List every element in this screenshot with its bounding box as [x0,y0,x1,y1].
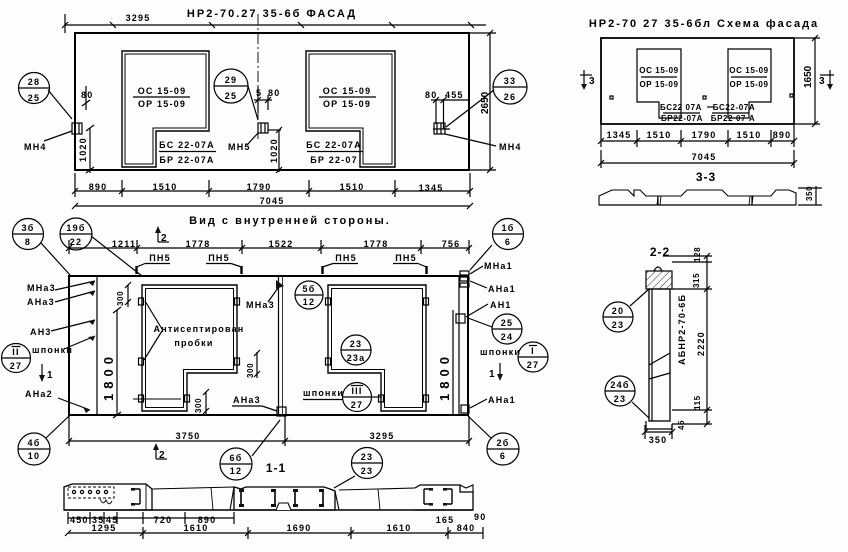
svg-text:АН1: АН1 [490,300,512,310]
svg-text:шпонки: шпонки [303,388,344,398]
svg-text:720: 720 [154,515,173,525]
svg-text:6б: 6б [230,453,243,463]
svg-text:5б: 5б [303,284,316,294]
svg-text:БС22 07А: БС22 07А [660,103,702,112]
svg-text:АНа3: АНа3 [233,395,261,405]
svg-text:1510: 1510 [647,130,672,140]
svg-text:23а: 23а [347,353,366,363]
svg-text:1: 1 [489,369,495,380]
svg-text:ПН5: ПН5 [208,253,230,263]
svg-text:27: 27 [10,361,22,371]
svg-text:890: 890 [773,130,792,140]
svg-text:1020: 1020 [78,137,88,162]
svg-text:ОР 15-09: ОР 15-09 [639,80,678,89]
svg-text:1790: 1790 [692,130,717,140]
svg-text:3-3: 3-3 [696,170,716,184]
svg-text:I: I [531,346,535,356]
svg-text:БР22-07А: БР22-07А [661,114,703,123]
svg-text:7045: 7045 [260,196,285,206]
svg-text:3750: 3750 [176,431,201,441]
svg-text:24б: 24б [610,380,629,390]
svg-text:БС 22-07А: БС 22-07А [306,140,362,150]
svg-text:шпонки: шпонки [480,347,521,357]
svg-text:10: 10 [28,451,40,461]
svg-text:МНа1: МНа1 [484,261,513,271]
svg-text:1800: 1800 [437,352,452,401]
svg-text:23: 23 [361,466,373,476]
svg-text:1800: 1800 [101,352,116,401]
svg-text:23: 23 [614,394,626,404]
svg-text:19б: 19б [66,223,85,233]
svg-text:300: 300 [194,398,203,413]
svg-text:1510: 1510 [737,130,762,140]
svg-text:ОС 15-09: ОС 15-09 [729,66,768,75]
svg-text:БР 22-07: БР 22-07 [310,155,358,165]
svg-text:АНа1: АНа1 [488,284,516,294]
svg-text:3: 3 [819,76,825,87]
svg-text:128: 128 [693,247,702,262]
svg-text:1295: 1295 [92,523,117,533]
svg-text:7045: 7045 [692,152,717,162]
svg-text:ОР 15-09: ОР 15-09 [323,99,371,109]
svg-text:300: 300 [116,291,125,306]
svg-text:1610: 1610 [387,523,412,533]
svg-text:ПН5: ПН5 [149,253,171,263]
svg-text:1-1: 1-1 [266,461,286,475]
svg-text:24: 24 [501,332,513,342]
svg-text:455: 455 [445,90,464,100]
svg-text:ПН5: ПН5 [395,253,417,263]
svg-text:1522: 1522 [269,239,294,249]
svg-text:АНа1: АНа1 [488,395,516,405]
svg-text:4б: 4б [28,438,41,448]
svg-text:1б: 1б [502,223,515,233]
svg-text:шпонки: шпонки [32,345,73,355]
svg-text:80: 80 [81,90,93,100]
svg-text:ПН5: ПН5 [335,253,357,263]
svg-text:1510: 1510 [153,182,178,192]
svg-text:25: 25 [225,91,237,101]
svg-text:2650: 2650 [480,91,491,114]
svg-text:1610: 1610 [184,523,209,533]
svg-text:1211: 1211 [112,239,136,249]
svg-text:890: 890 [89,182,108,192]
svg-text:БР22 07 А: БР22 07 А [711,114,756,123]
svg-text:МН4: МН4 [499,142,522,152]
svg-text:300: 300 [246,363,255,378]
svg-text:1510: 1510 [340,182,365,192]
svg-text:23: 23 [361,452,373,462]
svg-text:26: 26 [504,92,516,102]
svg-text:1790: 1790 [247,182,272,192]
svg-text:2б: 2б [497,438,510,448]
svg-text:1778: 1778 [186,239,211,249]
svg-text:ОР 15-09: ОР 15-09 [729,80,768,89]
svg-text:АБНР2-70-6Б: АБНР2-70-6Б [677,294,687,365]
svg-text:2220: 2220 [696,331,706,356]
svg-text:пробки: пробки [174,338,213,348]
svg-text:27: 27 [527,360,539,370]
svg-text:1345: 1345 [419,183,444,193]
svg-text:МН5: МН5 [228,142,251,152]
svg-text:3295: 3295 [370,431,395,441]
svg-text:29: 29 [225,75,237,85]
svg-text:756: 756 [442,239,461,249]
svg-text:165: 165 [436,515,455,525]
svg-text:АН3: АН3 [30,327,52,337]
svg-text:12: 12 [230,466,242,476]
svg-text:БС 22-07А: БС 22-07А [159,140,215,150]
svg-text:115: 115 [693,395,702,410]
svg-text:МНа3: МНа3 [27,283,56,293]
svg-text:III: III [351,386,362,396]
svg-text:1: 1 [47,370,53,381]
svg-text:22: 22 [70,237,82,247]
svg-text:28: 28 [28,77,40,87]
svg-text:8: 8 [25,237,31,247]
svg-text:25: 25 [28,93,40,103]
svg-text:80: 80 [268,88,280,98]
svg-text:БС22-07А: БС22-07А [713,103,755,112]
svg-text:45: 45 [677,420,686,430]
svg-text:ОР 15-09: ОР 15-09 [138,99,186,109]
svg-text:АНа3: АНа3 [27,297,55,307]
svg-text:1650: 1650 [803,65,814,88]
svg-text:1020: 1020 [269,138,279,163]
svg-text:450: 450 [70,515,89,525]
svg-text:Вид с внутренней стороны.: Вид с внутренней стороны. [189,215,391,227]
svg-text:27: 27 [351,400,363,410]
svg-text:1345: 1345 [607,130,632,140]
svg-text:3б: 3б [22,223,35,233]
svg-text:350: 350 [805,186,814,201]
svg-text:3295: 3295 [126,13,151,23]
svg-text:ОС 15-09: ОС 15-09 [323,86,372,96]
svg-text:6: 6 [505,237,511,247]
svg-text:Антисептирован: Антисептирован [154,324,245,334]
svg-text:3: 3 [589,76,595,87]
svg-text:БР 22-07А: БР 22-07А [159,155,214,165]
svg-text:23: 23 [612,320,624,330]
svg-text:МН4: МН4 [24,142,47,152]
svg-text:ОС 15-09: ОС 15-09 [639,66,678,75]
svg-text:25: 25 [501,318,513,328]
svg-text:5: 5 [256,88,262,98]
svg-text:350: 350 [649,435,668,445]
svg-text:2-2: 2-2 [650,245,670,259]
svg-text:2: 2 [161,233,167,244]
svg-text:12: 12 [303,297,315,307]
svg-text:6: 6 [500,451,506,461]
svg-text:33: 33 [504,76,516,86]
svg-text:90: 90 [474,512,486,522]
svg-text:НР2-70 27 35-6бл Схема фасада: НР2-70 27 35-6бл Схема фасада [589,18,819,30]
svg-text:ОС 15-09: ОС 15-09 [138,86,187,96]
svg-text:II: II [12,347,19,357]
svg-text:АНа2: АНа2 [25,389,53,399]
svg-text:20: 20 [612,306,624,316]
svg-text:80: 80 [425,90,437,100]
svg-text:1690: 1690 [287,523,312,533]
svg-text:840: 840 [457,523,476,533]
svg-text:МНа3: МНа3 [246,300,275,310]
svg-text:23: 23 [350,339,362,349]
svg-text:НР2-70.27 35-6б ФАСАД: НР2-70.27 35-6б ФАСАД [187,8,357,20]
svg-text:2: 2 [159,450,165,461]
svg-text:315: 315 [692,273,701,288]
svg-text:1778: 1778 [364,239,389,249]
